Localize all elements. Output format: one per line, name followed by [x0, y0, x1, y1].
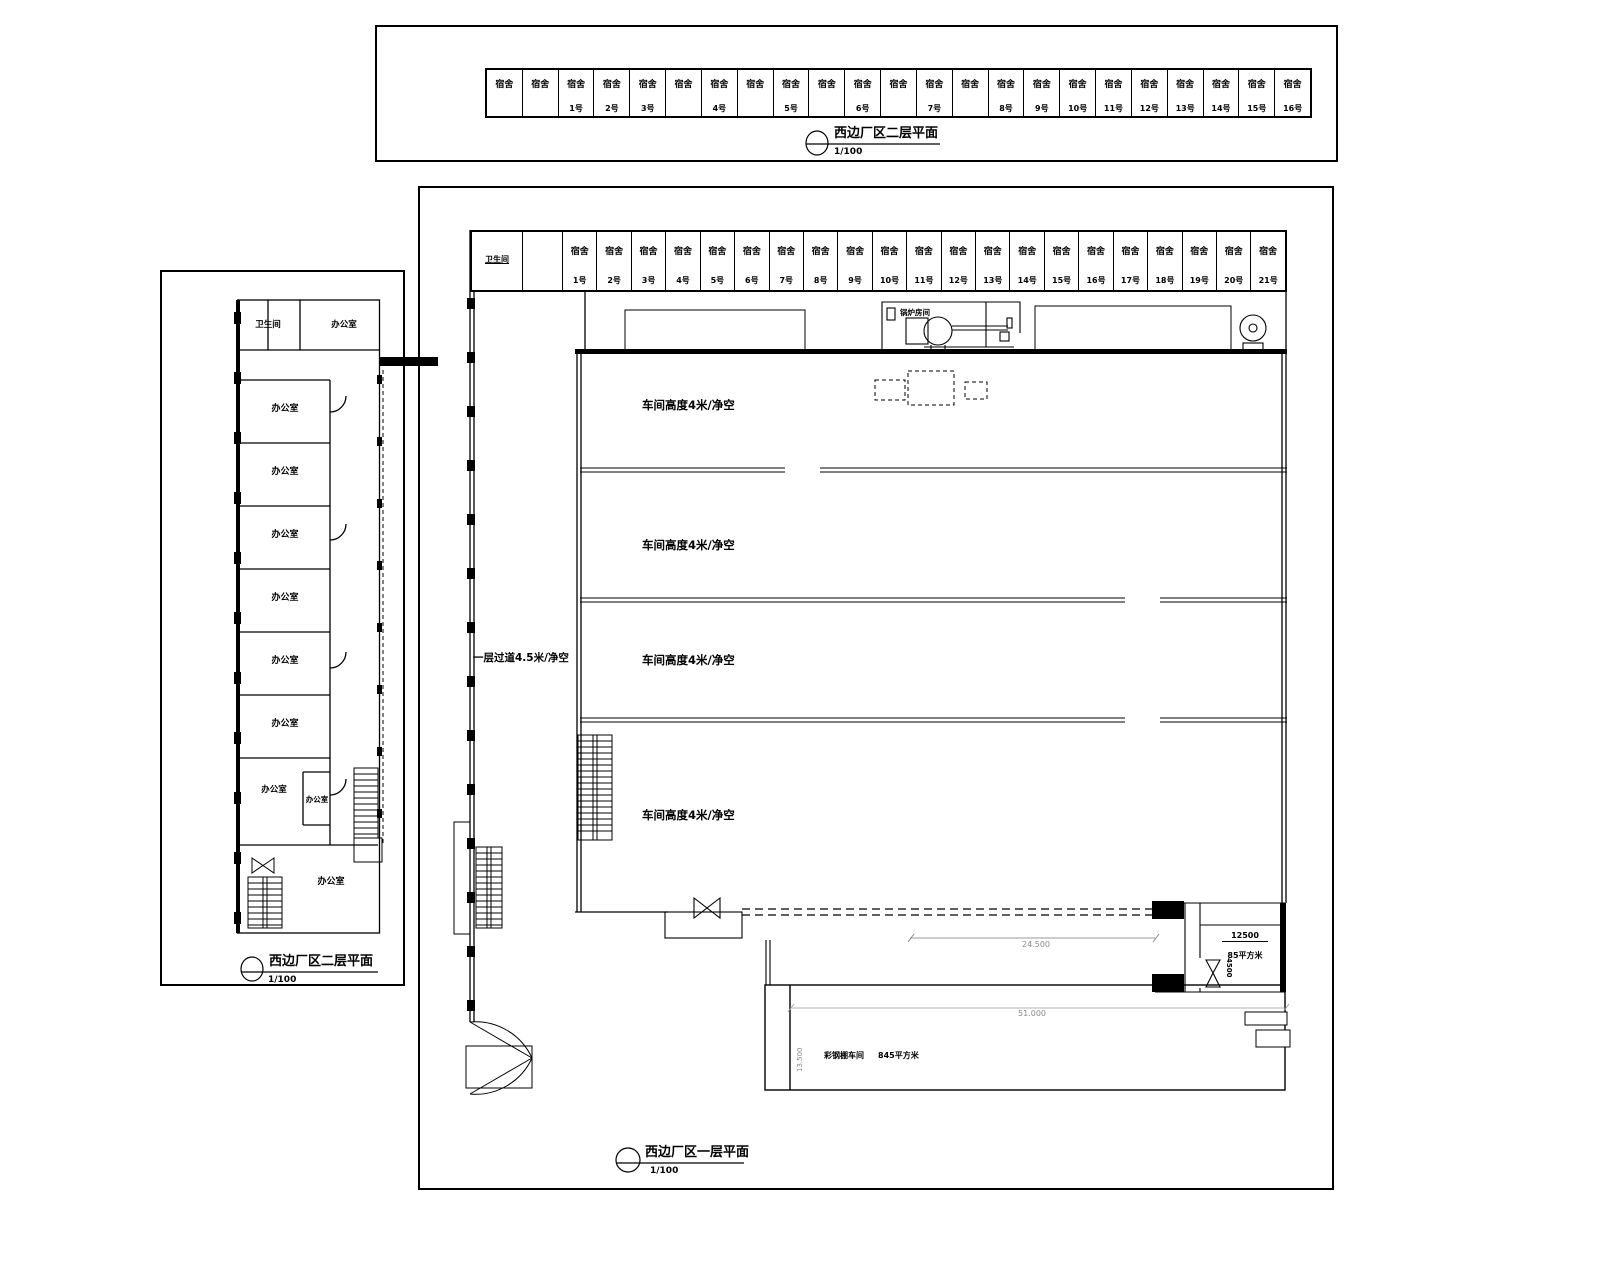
dorm-cell-label: 宿舍: [523, 77, 558, 90]
dorm-cell: 宿舍: [808, 70, 844, 116]
dorm-cell-label: 宿舍: [953, 77, 988, 90]
corridor-label: 一层过道4.5米/净空: [473, 653, 569, 664]
dorm-cell: 宿舍: [952, 70, 988, 116]
dorm-cell-label: 宿舍: [1010, 244, 1043, 257]
dorm-cell: 宿舍 3号: [631, 232, 665, 290]
dorm-cell-label: 宿舍: [1024, 77, 1059, 90]
dorm-cell-number: 11号: [1096, 103, 1131, 114]
dorm-cell-number: 3号: [632, 275, 665, 286]
dorm-cell: 宿舍 7号: [769, 232, 803, 290]
dorm-cell: 宿舍 8号: [988, 70, 1024, 116]
dorm-cell-number: 11号: [907, 275, 940, 286]
dorm-cell-label: 宿舍: [774, 77, 809, 90]
dorm-cell-label: 宿舍: [735, 244, 768, 257]
dorm-cell-number: 20号: [1217, 275, 1250, 286]
main-1f-title: 西边厂区一层平面: [644, 1146, 750, 1159]
dorm-cell: 宿舍 21号: [1250, 232, 1284, 290]
dorm-cell-number: 4号: [702, 103, 737, 114]
workshop-label-4: 车间高度4米/净空: [642, 810, 735, 822]
dorm-cell: 宿舍 15号: [1238, 70, 1274, 116]
strip-2f-scale: 1/100: [834, 148, 862, 157]
dorm-cell-label: 宿舍: [487, 77, 522, 90]
dorm-cell-label: 宿舍: [1251, 244, 1284, 257]
dorm-cell-label: 宿舍: [1079, 244, 1112, 257]
dorm-cell: 宿舍 6号: [844, 70, 880, 116]
annex-dim-top: 12500: [1222, 932, 1268, 942]
shed-area-label: 845平方米: [878, 1052, 919, 1060]
dorm-cell-number: 1号: [559, 103, 594, 114]
dorm-cell-number: 13号: [976, 275, 1009, 286]
dorm-cell: 宿舍 8号: [803, 232, 837, 290]
left-2f-office-mid-label: 办公室: [244, 786, 304, 795]
dorm-cell: 宿舍 1号: [562, 232, 596, 290]
dorm-cell: 宿舍: [737, 70, 773, 116]
dorm-cell-label: 宿舍: [563, 244, 596, 257]
dorm-cell-label: 宿舍: [873, 244, 906, 257]
dorm-cell: 宿舍 5号: [700, 232, 734, 290]
dorm-cell: 宿舍 14号: [1203, 70, 1239, 116]
dorm-cell: 宿舍 5号: [773, 70, 809, 116]
dorm-cell-number: 15号: [1239, 103, 1274, 114]
dorm-cell-label: 宿舍: [1275, 77, 1310, 90]
dorm-cell-label: 宿舍: [1148, 244, 1181, 257]
strip-2f-title: 西边厂区二层平面: [830, 127, 942, 140]
dorm-cell-number: 12号: [942, 275, 975, 286]
dorm-cell-label: 宿舍: [845, 77, 880, 90]
dorm-cell-number: 16号: [1275, 103, 1310, 114]
dorm-cell: 宿舍 15号: [1044, 232, 1078, 290]
dorm-cell-label: 宿舍: [1096, 77, 1131, 90]
wall-dimension: 24.500: [1022, 941, 1050, 949]
dorm-row-1f-cells: 宿舍 1号 宿舍 2号 宿舍 3号 宿舍 4号 宿舍 5号 宿舍 6号 宿舍 7…: [562, 232, 1285, 290]
dorm-cell-number: 6号: [845, 103, 880, 114]
left-2f-office-label: 办公室: [250, 657, 320, 666]
dorm-cell: 宿舍 12号: [1131, 70, 1167, 116]
yard-width-dimension: 51.000: [1018, 1010, 1046, 1018]
blank-cell: [522, 232, 562, 290]
dorm-cell: 宿舍 11号: [1095, 70, 1131, 116]
dorm-cell-number: 9号: [838, 275, 871, 286]
dorm-cell: 宿舍 14号: [1009, 232, 1043, 290]
workshop-label-2: 车间高度4米/净空: [642, 540, 735, 552]
dorm-cell-number: 16号: [1079, 275, 1112, 286]
dorm-cell-number: 13号: [1168, 103, 1203, 114]
dorm-cell-label: 宿舍: [917, 77, 952, 90]
dorm-cell-label: 宿舍: [1060, 77, 1095, 90]
dorm-cell: 宿舍 4号: [665, 232, 699, 290]
dorm-cell-label: 宿舍: [701, 244, 734, 257]
main-1f-scale: 1/100: [650, 1167, 678, 1176]
dorm-cell: 宿舍: [665, 70, 701, 116]
dorm-cell-number: 14号: [1010, 275, 1043, 286]
dorm-cell: 宿舍 3号: [629, 70, 665, 116]
dorm-cell: 宿舍 11号: [906, 232, 940, 290]
left-2f-toilet-label: 卫生间: [242, 321, 294, 330]
dorm-cell-label: 宿舍: [809, 77, 844, 90]
dorm-cell-number: 6号: [735, 275, 768, 286]
workshop-label-1: 车间高度4米/净空: [642, 400, 735, 412]
dorm-cell-label: 宿舍: [1204, 77, 1239, 90]
dorm-cell-label: 宿舍: [1045, 244, 1078, 257]
dorm-cell-number: 5号: [701, 275, 734, 286]
left-2f-office-small-label: 办公室: [300, 796, 334, 804]
dorm-cell-label: 宿舍: [1183, 244, 1216, 257]
dorm-cell-label: 宿舍: [976, 244, 1009, 257]
dorm-cell-label: 宿舍: [559, 77, 594, 90]
left-2f-office-label: 办公室: [250, 720, 320, 729]
dorm-cell: 宿舍 9号: [1023, 70, 1059, 116]
dorm-cell-label: 宿舍: [770, 244, 803, 257]
dorm-cell: 宿舍 2号: [596, 232, 630, 290]
dorm-cell-label: 宿舍: [630, 77, 665, 90]
left-2f-office-label: 办公室: [250, 531, 320, 540]
dorm-cell: 宿舍 10号: [872, 232, 906, 290]
dorm-cell-number: 2号: [594, 103, 629, 114]
dorm-cell: 宿舍 13号: [975, 232, 1009, 290]
toilet-cell: 卫生间: [472, 232, 522, 290]
dorm-row-1f: 卫生间 宿舍 1号 宿舍 2号 宿舍 3号 宿舍 4号 宿舍 5号 宿舍 6号 …: [470, 230, 1287, 292]
dorm-cell-number: 10号: [1060, 103, 1095, 114]
left-2f-office-label: 办公室: [250, 405, 320, 414]
dorm-cell-number: 2号: [597, 275, 630, 286]
dorm-cell-label: 宿舍: [1239, 77, 1274, 90]
dorm-cell-label: 宿舍: [1132, 77, 1167, 90]
dorm-cell-number: 4号: [666, 275, 699, 286]
dorm-cell: 宿舍: [487, 70, 522, 116]
dorm-cell-number: 7号: [770, 275, 803, 286]
left-2f-office-top-label: 办公室: [316, 321, 372, 330]
dorm-cell-label: 宿舍: [942, 244, 975, 257]
dorm-cell-label: 宿舍: [881, 77, 916, 90]
dorm-cell: 宿舍 17号: [1113, 232, 1147, 290]
dorm-cell-number: 10号: [873, 275, 906, 286]
dorm-cell-number: 8号: [989, 103, 1024, 114]
left-2f-office-label: 办公室: [250, 468, 320, 477]
dorm-cell-number: 19号: [1183, 275, 1216, 286]
dorm-cell: 宿舍 16号: [1078, 232, 1112, 290]
dorm-cell: 宿舍 10号: [1059, 70, 1095, 116]
dorm-cell: 宿舍 4号: [701, 70, 737, 116]
left-2f-office-label: 办公室: [250, 594, 320, 603]
left-2f-title: 西边厂区二层平面: [264, 955, 378, 968]
dorm-cell: 宿舍 2号: [593, 70, 629, 116]
dorm-cell-number: 5号: [774, 103, 809, 114]
dorm-cell-number: 14号: [1204, 103, 1239, 114]
dorm-cell-number: 15号: [1045, 275, 1078, 286]
dorm-cell-label: 宿舍: [1217, 244, 1250, 257]
shed-label: 彩钢棚车间: [824, 1052, 864, 1060]
dorm-cell: 宿舍 7号: [916, 70, 952, 116]
dorm-cell-number: 17号: [1114, 275, 1147, 286]
workshop-label-3: 车间高度4米/净空: [642, 655, 735, 667]
dorm-cell-label: 宿舍: [666, 77, 701, 90]
dorm-cell-label: 宿舍: [907, 244, 940, 257]
dorm-cell: 宿舍 16号: [1274, 70, 1310, 116]
dorm-cell-label: 宿舍: [838, 244, 871, 257]
dorm-cell: 宿舍 19号: [1182, 232, 1216, 290]
dorm-cell-number: 1号: [563, 275, 596, 286]
dorm-cell-number: 7号: [917, 103, 952, 114]
dorm-cell-label: 宿舍: [1168, 77, 1203, 90]
cad-sheet: { "colors": {"line":"#000000","bg":"#fff…: [0, 0, 1600, 1280]
viewport-frame-main-1f: [418, 186, 1334, 1190]
viewport-frame-left-2f: [160, 270, 405, 986]
dorm-cell-label: 宿舍: [632, 244, 665, 257]
yard-height-dimension: 13.500: [797, 1048, 804, 1073]
dorm-cell-number: 9号: [1024, 103, 1059, 114]
left-2f-office-bottom-label: 办公室: [296, 878, 366, 887]
dorm-cell-label: 宿舍: [666, 244, 699, 257]
boiler-room-label: 锅炉房间: [900, 309, 930, 317]
toilet-label: 卫生间: [472, 254, 522, 265]
dorm-cell-number: 3号: [630, 103, 665, 114]
dorm-cell: 宿舍 6号: [734, 232, 768, 290]
dorm-cell-number: 8号: [804, 275, 837, 286]
dorm-cell: 宿舍 9号: [837, 232, 871, 290]
dorm-cell-label: 宿舍: [597, 244, 630, 257]
dorm-cell: 宿舍 20号: [1216, 232, 1250, 290]
dorm-cell-label: 宿舍: [738, 77, 773, 90]
dorm-cell: 宿舍: [522, 70, 558, 116]
dorm-cell: 宿舍 18号: [1147, 232, 1181, 290]
dorm-cell-label: 宿舍: [702, 77, 737, 90]
left-2f-scale: 1/100: [268, 976, 296, 985]
dorm-cell-number: 12号: [1132, 103, 1167, 114]
dorm-cell: 宿舍: [880, 70, 916, 116]
dorm-strip-2f: 宿舍 宿舍 宿舍 1号 宿舍 2号 宿舍 3号 宿舍 宿舍 4号 宿舍 宿舍 5…: [485, 68, 1312, 118]
dorm-cell: 宿舍 1号: [558, 70, 594, 116]
dorm-cell: 宿舍 12号: [941, 232, 975, 290]
dorm-cell-number: 18号: [1148, 275, 1181, 286]
dorm-cell-label: 宿舍: [989, 77, 1024, 90]
dorm-cell-number: 21号: [1251, 275, 1284, 286]
dorm-cell-label: 宿舍: [804, 244, 837, 257]
dorm-cell: 宿舍 13号: [1167, 70, 1203, 116]
dorm-cell-label: 宿舍: [594, 77, 629, 90]
annex-dim-side: 4500: [1225, 958, 1232, 977]
dorm-cell-label: 宿舍: [1114, 244, 1147, 257]
